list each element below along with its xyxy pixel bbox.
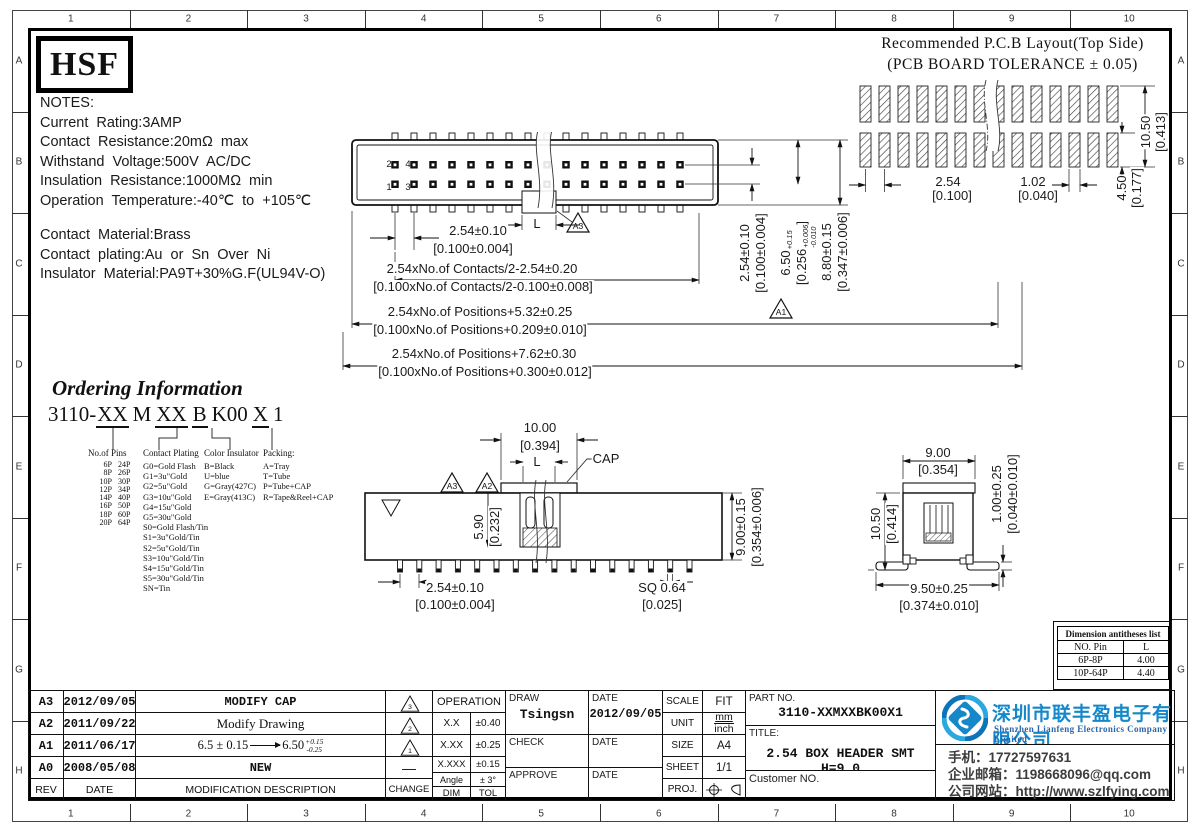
dim-tv-r4a: 2.54xNo.of Positions+7.62±0.30	[391, 347, 578, 361]
dim-fv-l: L	[532, 455, 541, 469]
a1-desc-main: 6.50	[282, 738, 304, 753]
plating-item: S4=15u"Gold/Tin	[143, 563, 208, 573]
ordering-plating-column: Contact Plating G0=Gold FlashG1=3u"GoldG…	[143, 448, 208, 594]
ruler-tick	[1172, 619, 1188, 620]
approve-label: APPROVE	[509, 770, 557, 781]
rev-a3-desc: MODIFY CAP	[135, 690, 386, 713]
dim-pcb-gb: [0.177]	[1130, 167, 1144, 209]
rev-a2-flag-cell: 2	[385, 712, 433, 735]
ruler-tick	[1070, 804, 1071, 822]
dim-tv-p1: 1	[385, 181, 392, 195]
ruler-col-number: 3	[303, 14, 309, 25]
ruler-row-letter: H	[1177, 766, 1184, 777]
ruler-row-letter: H	[15, 766, 22, 777]
ordering-leader-lines	[85, 428, 305, 450]
part-seg: 1	[273, 402, 284, 426]
part-seg: K00	[212, 402, 248, 426]
drawer-name: Tsingsn	[506, 707, 588, 722]
ruler-col-number: 7	[774, 14, 780, 25]
part-no-cell: PART NO. 3110-XXMXXBK00X1	[745, 690, 936, 726]
rev-a0-date: 2008/05/08	[63, 756, 136, 779]
plating-item: S2=5u"Gold/Tin	[143, 543, 208, 553]
dim-table-cell: 6P-8P	[1058, 654, 1124, 667]
dim-tv-v1b: [0.100±0.004]	[754, 212, 768, 293]
ruler-tick	[12, 112, 28, 113]
arrow-line	[250, 745, 280, 746]
ruler-tick	[1172, 416, 1188, 417]
ruler-col-number: 8	[891, 14, 897, 25]
dim-tv-r3a: 2.54xNo.of Positions+5.32±0.25	[387, 305, 574, 319]
ruler-tick	[365, 10, 366, 28]
rev-a3-date: 2012/09/05	[63, 690, 136, 713]
ruler-tick	[1172, 315, 1188, 316]
notes-block: NOTES: Current Rating:3AMP Contact Resis…	[40, 94, 311, 211]
notes-line: Operation Temperature:-40℃ to +105℃	[40, 192, 311, 212]
revision-flag-number: 2	[400, 724, 421, 732]
part-seg-pins: XX	[96, 402, 128, 428]
dim-tv-l: L	[532, 217, 541, 231]
ruler-tick	[365, 804, 366, 822]
plating-item: SN=Tin	[143, 583, 208, 593]
tol-lower: -0.010	[810, 225, 818, 248]
date-label: DATE	[592, 693, 618, 704]
approve-cell: APPROVE	[505, 767, 589, 801]
part-seg-packing: X	[252, 402, 269, 428]
notes-line: Contact plating:Au or Sn Over Ni	[40, 246, 325, 266]
dim-tv-r4b: [0.100xNo.of Positions+0.300±0.012]	[377, 365, 592, 379]
rev-header-desc: MODIFICATION DESCRIPTION	[135, 778, 386, 801]
check-date-cell: DATE	[588, 734, 663, 768]
ruler-col-number: 10	[1124, 14, 1135, 25]
ruler-col-number: 2	[186, 809, 192, 820]
tol-footer-tol: TOL	[470, 786, 506, 801]
dim-pcb-wb: [0.040]	[1017, 189, 1059, 203]
pcb-layout-title-line1: Recommended P.C.B Layout(Top Side)	[845, 33, 1180, 54]
ordering-color-column: Color Insulator B=BlackU=blueG=Gray(427C…	[204, 448, 259, 502]
datum-flag: A1	[768, 298, 794, 320]
rev-a2-desc: Modify Drawing	[135, 712, 386, 735]
date-label: DATE	[592, 770, 618, 781]
datum-flag-label: A3	[565, 221, 591, 231]
dim-pcb-w: 1.02	[1019, 175, 1046, 189]
material-notes-block: Contact Material:Brass Contact plating:A…	[40, 226, 325, 285]
ruler-tick	[600, 10, 601, 28]
company-website: 公司网站：http://www.szlfying.com	[948, 783, 1170, 800]
title-cell: TITLE: 2.54 BOX HEADER SMT H=9.0	[745, 725, 936, 771]
approve-date-cell: DATE	[588, 767, 663, 801]
notes-line: NOTES:	[40, 94, 311, 114]
sheet-value: 1/1	[702, 756, 746, 779]
dim-value: [0.256	[794, 249, 809, 285]
unit-label: UNIT	[662, 712, 703, 735]
ruler-tick	[835, 804, 836, 822]
rev-a3: A3	[28, 690, 64, 713]
dim-fv-10: 10.00	[523, 421, 558, 435]
ruler-row-letter: E	[16, 461, 23, 472]
datum-flag-label: A2	[474, 481, 500, 491]
unit-value: mminch	[702, 712, 746, 735]
ruler-tick	[247, 10, 248, 28]
ruler-col-number: 4	[421, 809, 427, 820]
ruler-row-letter: G	[15, 664, 23, 675]
tol-angle-label: Angle	[432, 772, 471, 787]
dim-table-cell: 10P-64P	[1058, 667, 1124, 680]
dim-pcb-g: 4.50	[1115, 174, 1129, 201]
datum-flag: A3	[565, 212, 591, 234]
packing-header: Packing:	[263, 448, 333, 458]
dim-fv-9b: [0.354±0.006]	[750, 486, 764, 567]
plating-header: Contact Plating	[143, 448, 208, 458]
company-phone: 手机：17727597631	[948, 749, 1071, 766]
draw-date-cell: DATE 2012/09/05	[588, 690, 663, 735]
ruler-col-number: 10	[1124, 809, 1135, 820]
tol-xxxx-value: ±0.15	[470, 756, 506, 773]
a1-desc-pre: 6.5 ± 0.15	[198, 738, 249, 753]
dim-tv-r2b: [0.100xNo.of Contacts/2-0.100±0.008]	[372, 280, 594, 294]
size-label: SIZE	[662, 734, 703, 757]
ruler-col-number: 4	[421, 14, 427, 25]
date-label: DATE	[592, 737, 618, 748]
tol-xxx-value: ±0.25	[470, 734, 506, 757]
hsf-logo-text: HSF	[39, 39, 130, 90]
ruler-col-number: 6	[656, 14, 662, 25]
datum-flag: A3	[439, 472, 465, 494]
plating-item: G2=5u"Gold	[143, 481, 208, 491]
scale-value: FIT	[702, 690, 746, 713]
dim-tv-p2: 2	[385, 158, 392, 172]
part-no-label: PART NO.	[749, 693, 795, 704]
rev-a0-change: —	[385, 756, 433, 779]
dim-fv-59b: [0.232]	[488, 506, 502, 548]
ruler-row-letter: D	[15, 360, 22, 371]
ruler-col-number: 9	[1009, 809, 1015, 820]
rev-a3-flag-cell: 3	[385, 690, 433, 713]
ruler-row-letter: G	[1177, 664, 1185, 675]
dim-tv-r2a: 2.54xNo.of Contacts/2-2.54±0.20	[386, 262, 579, 276]
color-item: U=blue	[204, 471, 259, 481]
datum-flag-label: A3	[439, 481, 465, 491]
dim-fv-59: 5.90	[472, 513, 486, 540]
datum-flag-label: A1	[768, 307, 794, 317]
notes-line: Contact Resistance:20mΩ max	[40, 133, 311, 153]
ruler-tick	[12, 619, 28, 620]
ruler-row-letter: F	[16, 563, 22, 574]
color-item: B=Black	[204, 461, 259, 471]
pins-row: 20P64P	[88, 519, 130, 527]
packing-item: A=Tray	[263, 461, 333, 471]
ordering-pins-column: No.of Pins 6P24P8P26P10P30P12P34P14P40P1…	[88, 448, 130, 527]
dim-tv-r1a: 2.54±0.10	[448, 224, 508, 238]
dim-tv-p3: 3	[404, 181, 411, 195]
notes-line: Insulation Resistance:1000MΩ min	[40, 172, 311, 192]
rev-a1-date: 2011/06/17	[63, 734, 136, 757]
ordering-packing-column: Packing: A=TrayT=TubeP=Tube+CAPR=Tape&Re…	[263, 448, 333, 502]
dim-tv-p4: 4	[404, 158, 411, 172]
draw-cell: DRAW Tsingsn	[505, 690, 589, 735]
ruler-tick	[718, 804, 719, 822]
packing-item: R=Tape&Reel+CAP	[263, 492, 333, 502]
dim-table-title: Dimension antitheses list	[1058, 627, 1169, 641]
plating-item: G0=Gold Flash	[143, 461, 208, 471]
tol-xxx-label: X.XX	[432, 734, 471, 757]
dim-fv-10b: [0.394]	[519, 439, 561, 453]
ruler-tick	[12, 213, 28, 214]
ruler-col-number: 9	[1009, 14, 1015, 25]
ordering-title: Ordering Information	[52, 376, 243, 401]
connector-top-view-drawing	[340, 132, 1040, 382]
check-label: CHECK	[509, 737, 544, 748]
tol-angle-value: ± 3°	[470, 772, 506, 787]
packing-item: P=Tube+CAP	[263, 481, 333, 491]
ruler-tick	[718, 10, 719, 28]
scale-label: SCALE	[662, 690, 703, 713]
pins-header: No.of Pins	[88, 448, 130, 458]
color-item: G=Gray(427C)	[204, 481, 259, 491]
dim-tv-v3b: [0.347±0.006]	[836, 211, 850, 292]
sheet-label: SHEET	[662, 756, 703, 779]
rev-a0: A0	[28, 756, 64, 779]
dim-pcb-p: 2.54	[934, 175, 961, 189]
revision-flag: 2	[400, 717, 421, 735]
tol-footer-dim: DIM	[432, 786, 471, 801]
revision-flag: 1	[400, 739, 421, 757]
tolerance-header: OPERATION	[432, 690, 506, 713]
company-logo	[942, 695, 988, 741]
dim-sv-1b: [0.040±0.010]	[1006, 453, 1020, 534]
color-header: Color Insulator	[204, 448, 259, 458]
dim-sv-9b: [0.354]	[917, 463, 959, 477]
dim-pcb-h: 10.50	[1139, 115, 1153, 150]
customer-cell: Customer NO.	[745, 770, 936, 801]
ruler-tick	[835, 10, 836, 28]
tol-lower: -0.25	[305, 746, 323, 754]
ruler-col-number: 1	[68, 14, 74, 25]
notes-line: Contact Material:Brass	[40, 226, 325, 246]
packing-item: T=Tube	[263, 471, 333, 481]
dim-pcb-hb: [0.413]	[1154, 111, 1168, 153]
rev-a1: A1	[28, 734, 64, 757]
ruler-row-letter: A	[16, 55, 23, 66]
tol-xx-value: ±0.40	[470, 712, 506, 735]
rev-a2-date: 2011/09/22	[63, 712, 136, 735]
dim-tv-r3b: [0.100xNo.of Positions+0.209±0.010]	[372, 323, 587, 337]
ruler-tick	[953, 10, 954, 28]
dim-table-col-l: L	[1124, 641, 1169, 654]
rev-header-date: DATE	[63, 778, 136, 801]
ruler-tick	[1172, 518, 1188, 519]
ruler-tick	[12, 416, 28, 417]
dim-table-col-pin: NO. Pin	[1058, 641, 1124, 654]
dim-fv-9: 9.00±0.15	[734, 497, 748, 557]
dim-sv-95b: [0.374±0.010]	[898, 599, 979, 613]
company-name-en: Shenzhen Lianfeng Electronics Company Li…	[994, 724, 1174, 744]
pcb-layout-title: Recommended P.C.B Layout(Top Side) (PCB …	[845, 33, 1180, 75]
ruler-tick	[130, 10, 131, 28]
ruler-col-number: 2	[186, 14, 192, 25]
plating-item: G1=3u"Gold	[143, 471, 208, 481]
ruler-col-number: 7	[774, 809, 780, 820]
ruler-tick	[482, 10, 483, 28]
ruler-tick	[247, 804, 248, 822]
customer-label: Customer NO.	[749, 773, 819, 785]
rev-header-rev: REV	[28, 778, 64, 801]
plating-item: S3=10u"Gold/Tin	[143, 553, 208, 563]
dim-tv-r1b: [0.100±0.004]	[432, 242, 513, 256]
ruler-col-number: 5	[538, 14, 544, 25]
rev-a1-desc: 6.5 ± 0.156.50+0.15-0.25	[135, 734, 386, 757]
ruler-tick	[130, 804, 131, 822]
rev-a0-desc: NEW	[135, 756, 386, 779]
drawing-title: 2.54 BOX HEADER SMT H=9.0	[746, 746, 935, 771]
tol-xx-label: X.X	[432, 712, 471, 735]
dim-256-tolerance: [0.256+0.006-0.010]	[795, 220, 817, 286]
proj-symbol-cell	[702, 778, 746, 801]
company-contact-cell: 手机：17727597631 企业邮箱：1198668096@qq.com 公司…	[935, 744, 1175, 801]
plating-item: S1=3u"Gold/Tin	[143, 532, 208, 542]
ruler-tick	[12, 315, 28, 316]
part-seg-color: B	[192, 402, 208, 428]
pcb-layout-title-line2: (PCB BOARD TOLERANCE ± 0.05)	[845, 54, 1180, 75]
dim-value: ]	[794, 221, 809, 225]
revision-flag-number: 1	[400, 746, 421, 754]
ruler-row-letter: B	[16, 157, 23, 168]
plating-item: S0=Gold Flash/Tin	[143, 522, 208, 532]
dim-table-cell: 4.00	[1124, 654, 1169, 667]
check-cell: CHECK	[505, 734, 589, 768]
dimension-antitheses-table: Dimension antitheses list NO. Pin L 6P-8…	[1057, 626, 1169, 680]
ruler-row-letter: F	[1178, 563, 1184, 574]
ruler-tick	[953, 804, 954, 822]
ruler-tick	[600, 804, 601, 822]
dim-fv-sqb: [0.025]	[641, 598, 683, 612]
draw-date-value: 2012/09/05	[589, 707, 662, 721]
plating-item: S5=30u"Gold/Tin	[143, 573, 208, 583]
ruler-tick	[1070, 10, 1071, 28]
color-item: E=Gray(413C)	[204, 492, 259, 502]
ruler-col-number: 5	[538, 809, 544, 820]
notes-line: Current Rating:3AMP	[40, 114, 311, 134]
company-email: 企业邮箱：1198668096@qq.com	[948, 766, 1151, 783]
ruler-row-letter: D	[1177, 360, 1184, 371]
ruler-tick	[12, 721, 28, 722]
notes-line: Withstand Voltage:500V AC/DC	[40, 153, 311, 173]
dim-sv-105: 10.50	[869, 507, 883, 542]
dim-fv-cap: CAP	[592, 452, 621, 466]
ruler-row-letter: C	[1177, 258, 1184, 269]
dim-sv-1: 1.00±0.25	[990, 464, 1004, 524]
size-value: A4	[702, 734, 746, 757]
revision-flag: 3	[400, 695, 421, 713]
dim-pcb-pb: [0.100]	[931, 189, 973, 203]
dim-fv-254: 2.54±0.10	[425, 581, 485, 595]
datum-flag: A2	[474, 472, 500, 494]
rev-a1-flag-cell: 1	[385, 734, 433, 757]
rev-a2: A2	[28, 712, 64, 735]
title-label: TITLE:	[749, 728, 779, 739]
dim-tv-v3a: 8.80±0.15	[820, 222, 834, 282]
ruler-tick	[482, 804, 483, 822]
plating-item: G4=15u"Gold	[143, 502, 208, 512]
draw-label: DRAW	[509, 693, 539, 704]
ordering-part-number: 3110-XXMXXBK00X1	[48, 402, 283, 427]
plating-item: G5=30u"Gold	[143, 512, 208, 522]
part-no-value: 3110-XXMXXBK00X1	[746, 705, 935, 720]
plating-item: G3=10u"Gold	[143, 492, 208, 502]
company-header-cell: 深圳市联丰盈电子有限公司 Shenzhen Lianfeng Electroni…	[935, 690, 1175, 745]
dim-table-cell: 4.40	[1124, 667, 1169, 680]
ruler-row-letter: C	[15, 258, 22, 269]
ruler-col-number: 6	[656, 809, 662, 820]
part-seg-plating: XX	[155, 402, 187, 428]
ruler-col-number: 1	[68, 809, 74, 820]
dim-sv-9: 9.00	[924, 446, 951, 460]
part-seg: 3110-	[48, 402, 96, 426]
notes-line: Insulator Material:PA9T+30%G.F(UL94V-O)	[40, 265, 325, 285]
dim-fv-sq: SQ 0.64	[637, 581, 687, 595]
dim-sv-105b: [0.414]	[885, 503, 899, 545]
proj-label: PROJ.	[662, 778, 703, 801]
ruler-col-number: 8	[891, 809, 897, 820]
ruler-col-number: 3	[303, 809, 309, 820]
dim-sv-95: 9.50±0.25	[909, 582, 969, 596]
ruler-row-letter: E	[1178, 461, 1185, 472]
dim-tv-v1a: 2.54±0.10	[738, 223, 752, 283]
revision-flag-number: 3	[400, 702, 421, 710]
part-seg: M	[133, 402, 152, 426]
ruler-tick	[12, 518, 28, 519]
projection-symbol	[705, 782, 743, 798]
tol-xxxx-label: X.XXX	[432, 756, 471, 773]
dim-fv-254b: [0.100±0.004]	[414, 598, 495, 612]
rev-header-change: CHANGE	[385, 778, 433, 801]
dim-value: 6.50	[778, 250, 793, 275]
hsf-logo: HSF	[36, 36, 133, 93]
